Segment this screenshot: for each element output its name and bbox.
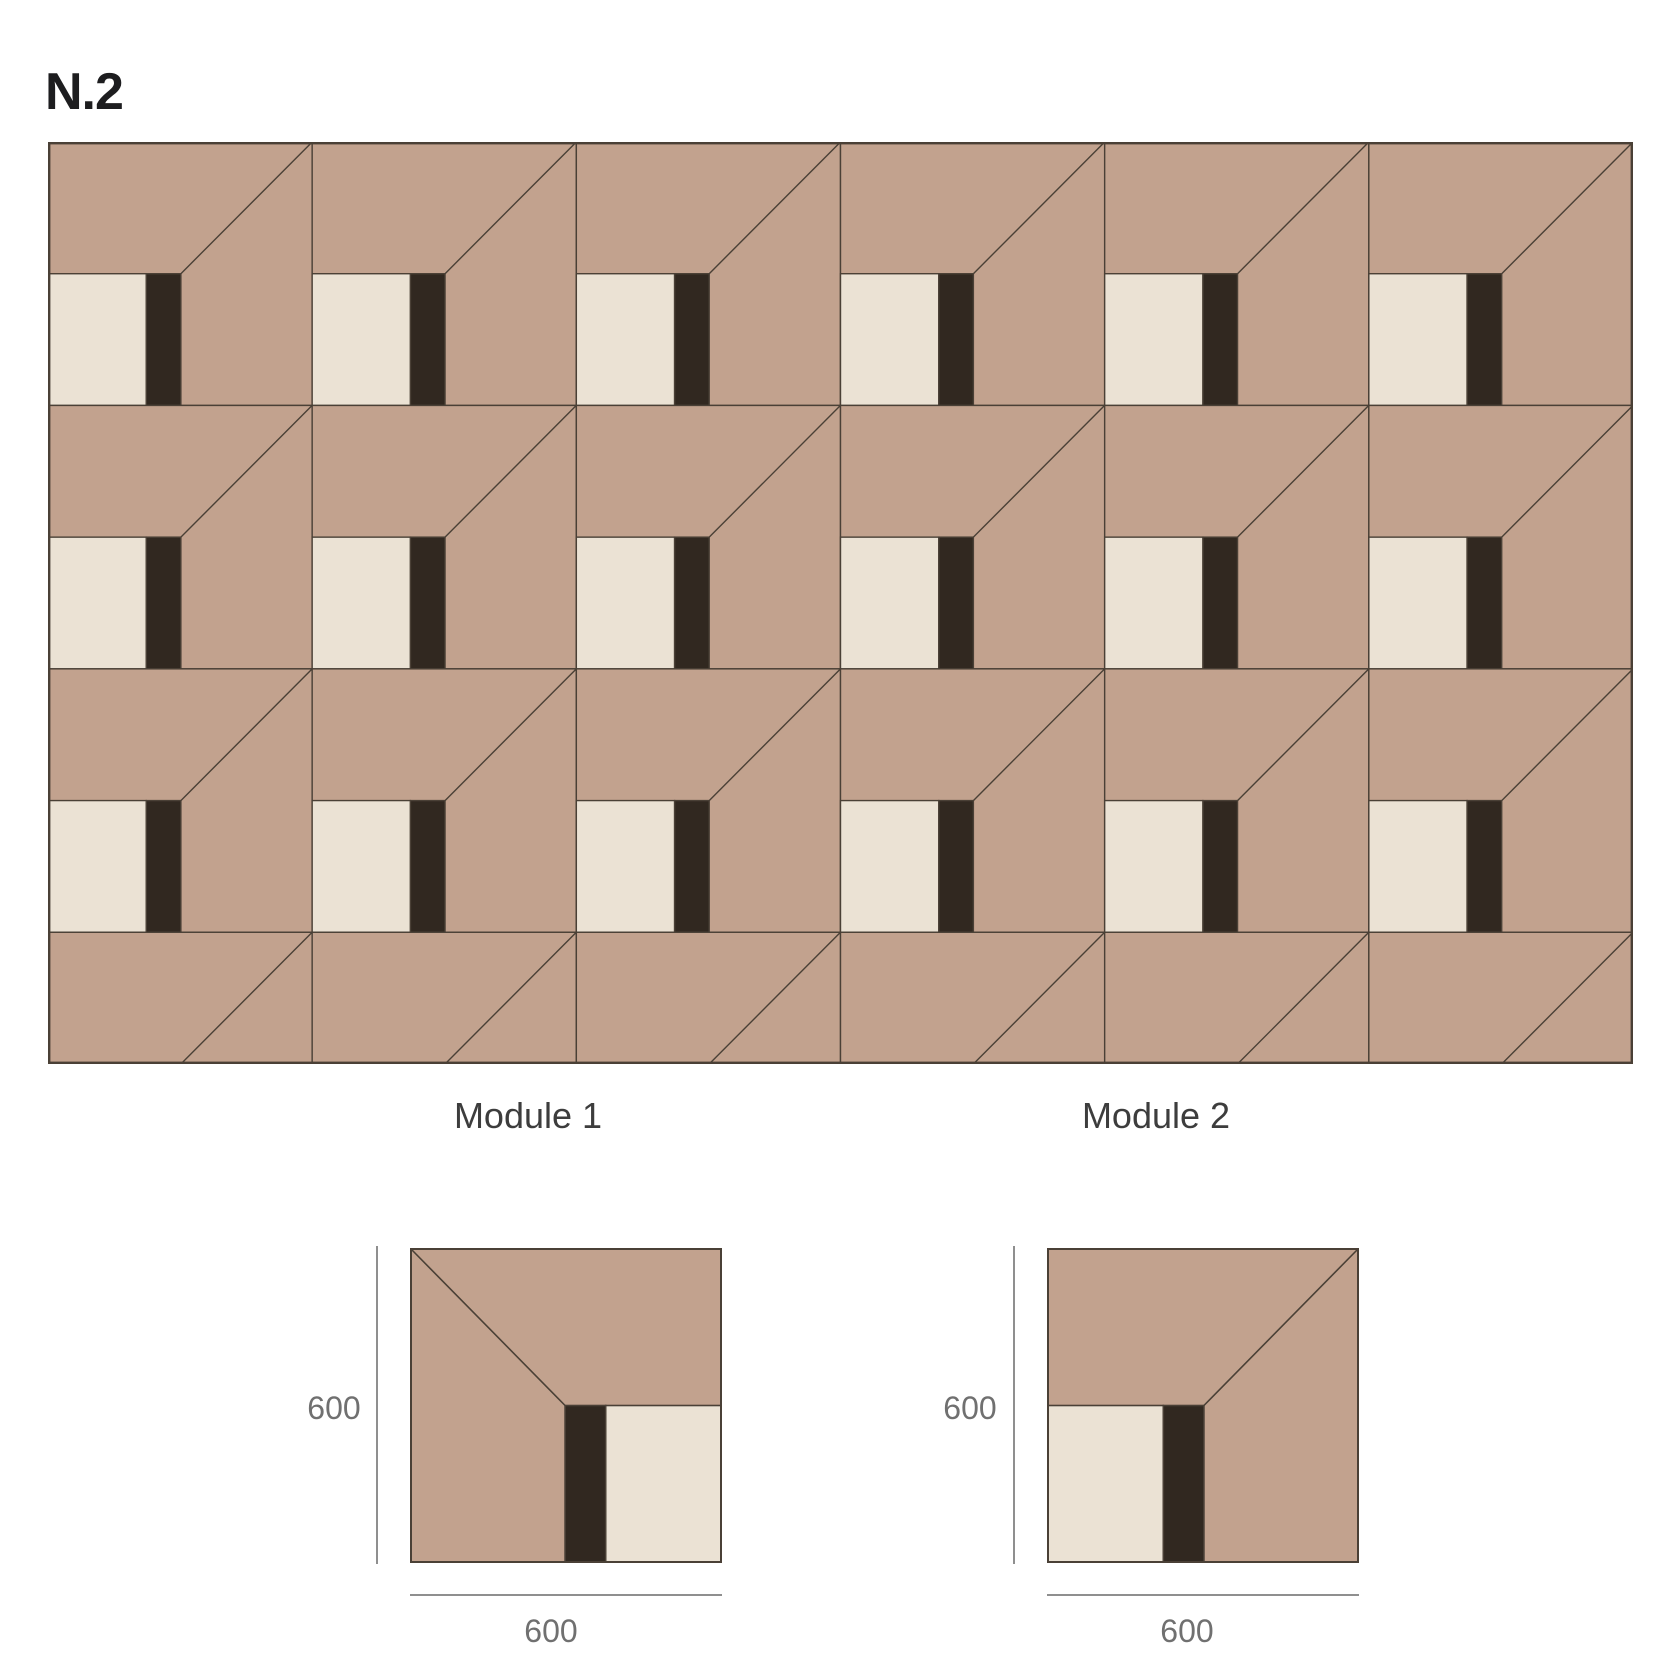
module-2-drawing (1047, 1248, 1359, 1563)
tile-dark-stripe (939, 274, 974, 406)
tile-dark-stripe (675, 801, 710, 933)
tile-cream-inset (1369, 537, 1467, 669)
tile-field (312, 932, 576, 1064)
tile-cream-inset (48, 274, 146, 406)
tile-dark-stripe (146, 274, 181, 406)
tile-field (841, 932, 1105, 1064)
module-2-label: Module 2 (1006, 1096, 1306, 1136)
tile-dark-stripe (565, 1406, 606, 1563)
module-2-width-value: 600 (1137, 1613, 1237, 1649)
tile-dark-stripe (1203, 801, 1238, 933)
tile-field (48, 932, 312, 1064)
tile-dark-stripe (410, 801, 445, 933)
tile-cream-inset (1048, 1406, 1163, 1563)
tile-dark-stripe (146, 537, 181, 669)
tile-dark-stripe (675, 537, 710, 669)
module-1-label: Module 1 (378, 1096, 678, 1136)
pattern-title: N.2 (45, 62, 123, 122)
tile-cream-inset (48, 537, 146, 669)
tile-dark-stripe (1203, 274, 1238, 406)
tile-dark-stripe (410, 537, 445, 669)
tile-cream-inset (1105, 274, 1203, 406)
tile-cream-inset (841, 801, 939, 933)
tile-cream-inset (841, 537, 939, 669)
module-1-drawing (410, 1248, 722, 1563)
tile-field (1369, 932, 1633, 1064)
tile-dark-stripe (939, 801, 974, 933)
module-1-height-value: 600 (284, 1390, 384, 1426)
tile-cream-inset (606, 1406, 721, 1563)
tile-cream-inset (841, 274, 939, 406)
tile-dark-stripe (1163, 1406, 1204, 1563)
module-2-width-dim-line (1047, 1594, 1359, 1596)
tile-cream-inset (576, 274, 674, 406)
tile-dark-stripe (1467, 801, 1502, 933)
tile-dark-stripe (675, 274, 710, 406)
tile-field (1105, 932, 1369, 1064)
tile-dark-stripe (939, 537, 974, 669)
module-2-height-value: 600 (920, 1390, 1020, 1426)
tile-field (576, 932, 840, 1064)
tile-dark-stripe (1203, 537, 1238, 669)
tile-cream-inset (576, 801, 674, 933)
tile-cream-inset (312, 801, 410, 933)
tile-cream-inset (48, 801, 146, 933)
tile-dark-stripe (410, 274, 445, 406)
tile-cream-inset (1369, 274, 1467, 406)
tile-cream-inset (312, 537, 410, 669)
tile-dark-stripe (1467, 537, 1502, 669)
tile-cream-inset (1105, 801, 1203, 933)
module-1-width-value: 600 (501, 1613, 601, 1649)
module-1-width-dim-line (410, 1594, 722, 1596)
tile-cream-inset (312, 274, 410, 406)
tile-pattern-grid (48, 142, 1633, 1064)
tile-cream-inset (1369, 801, 1467, 933)
tile-dark-stripe (1467, 274, 1502, 406)
tile-cream-inset (576, 537, 674, 669)
tile-cream-inset (1105, 537, 1203, 669)
tile-dark-stripe (146, 801, 181, 933)
